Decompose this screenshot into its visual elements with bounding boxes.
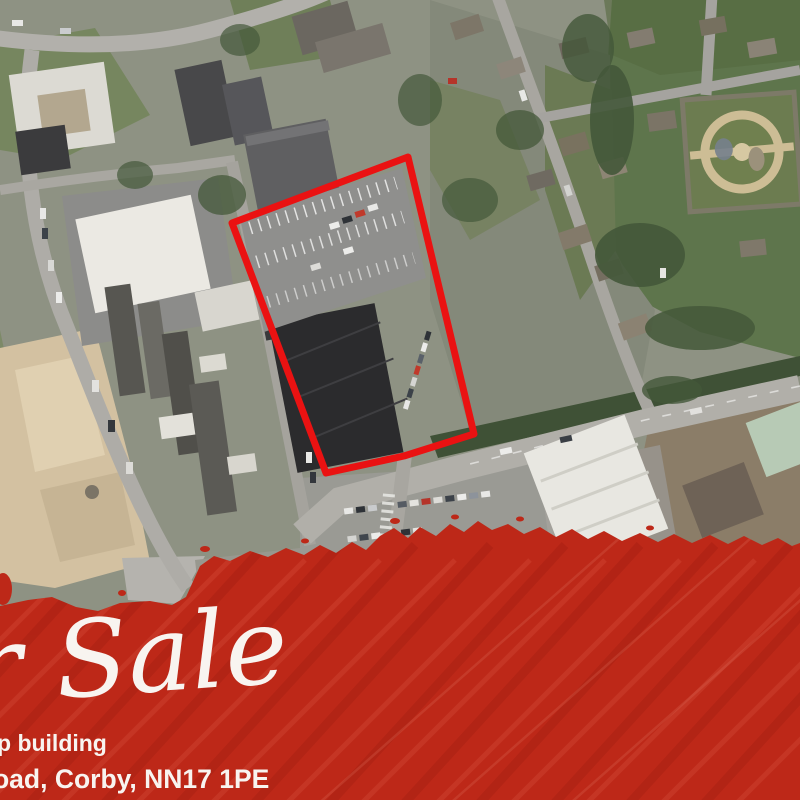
address-text: oad, Corby, NN17 1PE xyxy=(0,764,269,794)
property-description-text: p building xyxy=(0,730,107,756)
property-flyer: For Sale p building oad, Corby, NN17 1PE xyxy=(0,0,800,800)
aerial-photo: For Sale p building oad, Corby, NN17 1PE xyxy=(0,0,800,800)
walled-garden xyxy=(682,92,800,212)
